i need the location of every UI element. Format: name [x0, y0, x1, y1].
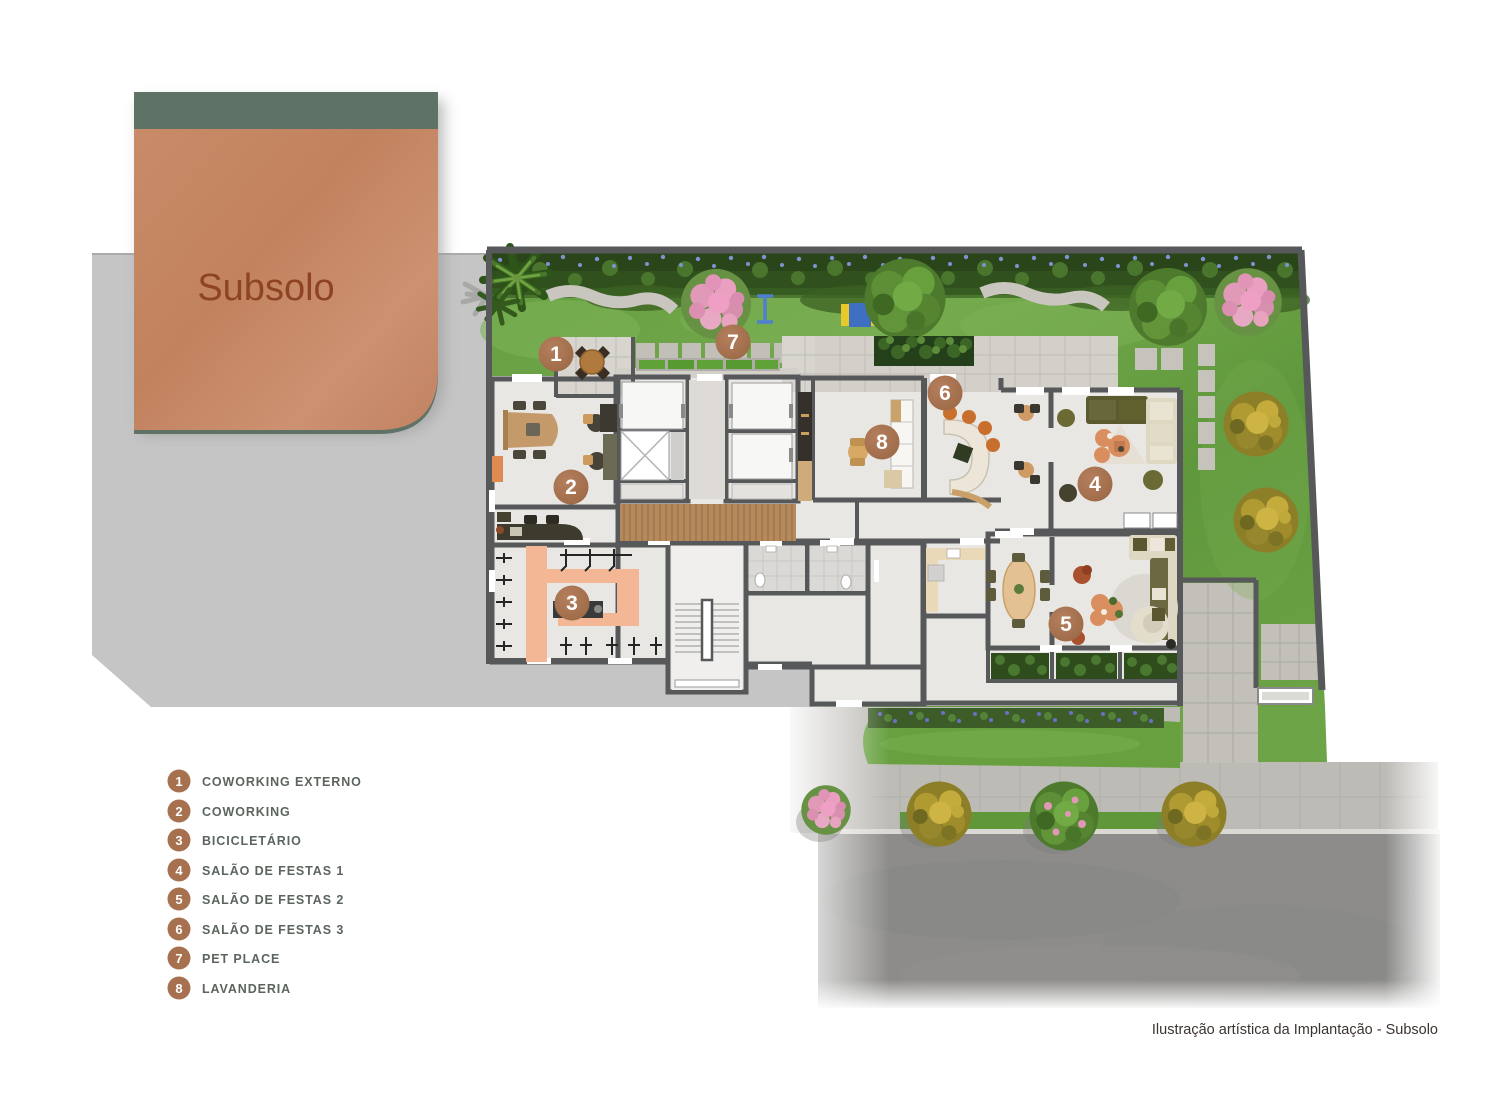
svg-text:4: 4: [1089, 473, 1101, 496]
svg-text:SALÃO DE FESTAS 3: SALÃO DE FESTAS 3: [202, 922, 344, 937]
svg-text:8: 8: [175, 981, 182, 996]
svg-text:COWORKING EXTERNO: COWORKING EXTERNO: [202, 775, 362, 789]
svg-text:5: 5: [175, 892, 182, 907]
svg-text:7: 7: [727, 331, 739, 354]
svg-text:PET PLACE: PET PLACE: [202, 952, 280, 966]
svg-text:5: 5: [1060, 613, 1072, 636]
svg-text:BICICLETÁRIO: BICICLETÁRIO: [202, 833, 302, 848]
svg-text:Subsolo: Subsolo: [197, 267, 334, 309]
svg-text:1: 1: [175, 774, 182, 789]
svg-text:4: 4: [175, 863, 183, 878]
svg-text:3: 3: [175, 833, 182, 848]
svg-text:6: 6: [939, 382, 951, 405]
svg-text:7: 7: [175, 951, 182, 966]
svg-text:1: 1: [550, 343, 562, 366]
svg-text:2: 2: [565, 476, 577, 499]
svg-text:6: 6: [175, 922, 182, 937]
svg-text:2: 2: [175, 804, 182, 819]
svg-text:3: 3: [566, 592, 578, 615]
svg-text:8: 8: [876, 431, 888, 454]
svg-text:Ilustração artística da Implan: Ilustração artística da Implantação - Su…: [1152, 1022, 1438, 1038]
svg-text:SALÃO DE FESTAS 2: SALÃO DE FESTAS 2: [202, 892, 344, 907]
svg-text:COWORKING: COWORKING: [202, 805, 291, 819]
svg-text:LAVANDERIA: LAVANDERIA: [202, 982, 291, 996]
svg-text:SALÃO DE FESTAS 1: SALÃO DE FESTAS 1: [202, 863, 344, 878]
